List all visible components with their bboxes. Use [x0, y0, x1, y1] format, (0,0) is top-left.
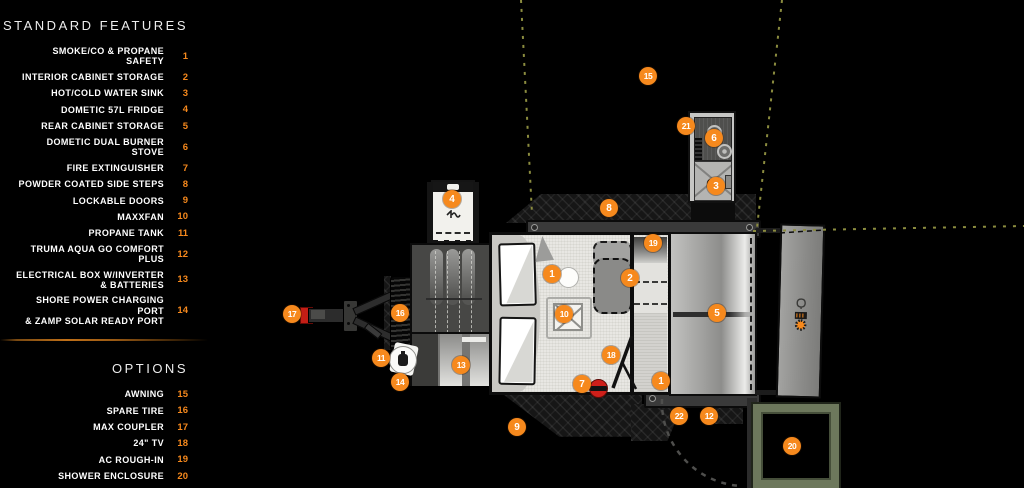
marker-21: 21 — [677, 117, 695, 135]
door-hinge-top — [755, 228, 782, 233]
fridge-slide-track — [430, 249, 443, 305]
marker-5: 5 — [708, 304, 726, 322]
awning-outline-right — [757, 0, 782, 228]
marker-4: 4 — [443, 190, 461, 208]
marker-17: 17 — [283, 305, 301, 323]
bolt — [347, 322, 350, 325]
cabin-interior — [489, 232, 671, 395]
marker-8: 8 — [600, 199, 618, 217]
marker-6: 6 — [705, 129, 723, 147]
slide-guide-dash — [471, 251, 472, 333]
shelf-dash — [634, 281, 667, 283]
propane-tank-icon — [398, 354, 408, 366]
extinguisher-band — [590, 386, 607, 391]
bay-divider-line — [426, 298, 482, 300]
marker-19: 19 — [644, 234, 662, 252]
marker-1: 1 — [543, 265, 561, 283]
fridge-latch-icon — [446, 210, 461, 219]
pillow-bottom — [498, 317, 536, 386]
marker-12: 12 — [700, 407, 718, 425]
rail-pivot — [746, 224, 753, 231]
marker-10: 10 — [555, 305, 573, 323]
slide-guide-dash — [459, 251, 460, 333]
marker-11: 11 — [372, 349, 390, 367]
marker-16: 16 — [391, 304, 409, 322]
fire-extinguisher — [589, 379, 608, 398]
slide-guide-dash — [435, 251, 436, 333]
interior-shelf — [634, 263, 667, 313]
pillow-top — [498, 243, 537, 307]
marker-18: 18 — [602, 346, 620, 364]
sink-faucet — [725, 175, 732, 189]
stove-grate — [695, 138, 702, 160]
marker-14: 14 — [391, 373, 409, 391]
side-step-bottom — [504, 395, 642, 439]
rail-pivot — [649, 395, 656, 402]
fridge-dash-line — [436, 232, 470, 234]
slide-guide-dash — [447, 251, 448, 333]
trailer-floorplan: 112345678910111213141516171819202122 — [0, 0, 1024, 488]
smoke-detector — [558, 267, 579, 288]
marker-2: 2 — [621, 269, 639, 287]
rear-door-open — [776, 223, 826, 398]
drawbar-inner — [311, 310, 325, 319]
floorplan-page: STANDARD FEATURES SMOKE/CO & PROPANE SAF… — [0, 0, 1024, 488]
fridge-slide-track — [462, 249, 475, 305]
shelf-dash — [634, 303, 667, 305]
marker-20: 20 — [783, 437, 801, 455]
marker-22: 22 — [670, 407, 688, 425]
propane-tank-mount — [389, 346, 417, 374]
bolt — [347, 304, 350, 307]
marker-3: 3 — [707, 177, 725, 195]
marker-13: 13 — [452, 356, 470, 374]
marker-1: 1 — [652, 372, 670, 390]
cabinet-dash-line — [750, 238, 752, 390]
burner-right — [717, 144, 732, 159]
marker-15: 15 — [639, 67, 657, 85]
inverter-bar — [462, 337, 486, 342]
marker-7: 7 — [573, 375, 591, 393]
rail-pivot — [531, 224, 538, 231]
marker-9: 9 — [508, 418, 526, 436]
brand-logo — [791, 298, 810, 332]
awning-outline-left — [521, 0, 532, 214]
teardrop-outline-icon — [797, 299, 805, 309]
